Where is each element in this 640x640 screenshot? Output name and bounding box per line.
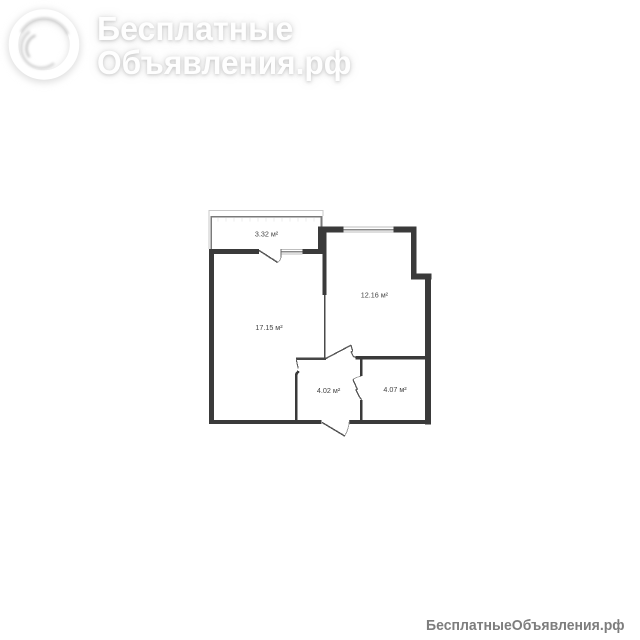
svg-text:12.16 м²: 12.16 м² xyxy=(361,290,389,299)
svg-text:17.15 м²: 17.15 м² xyxy=(255,323,283,332)
svg-text:4.07 м²: 4.07 м² xyxy=(383,385,407,394)
svg-text:3.32 м²: 3.32 м² xyxy=(255,230,279,239)
svg-text:4.02 м²: 4.02 м² xyxy=(317,386,341,395)
